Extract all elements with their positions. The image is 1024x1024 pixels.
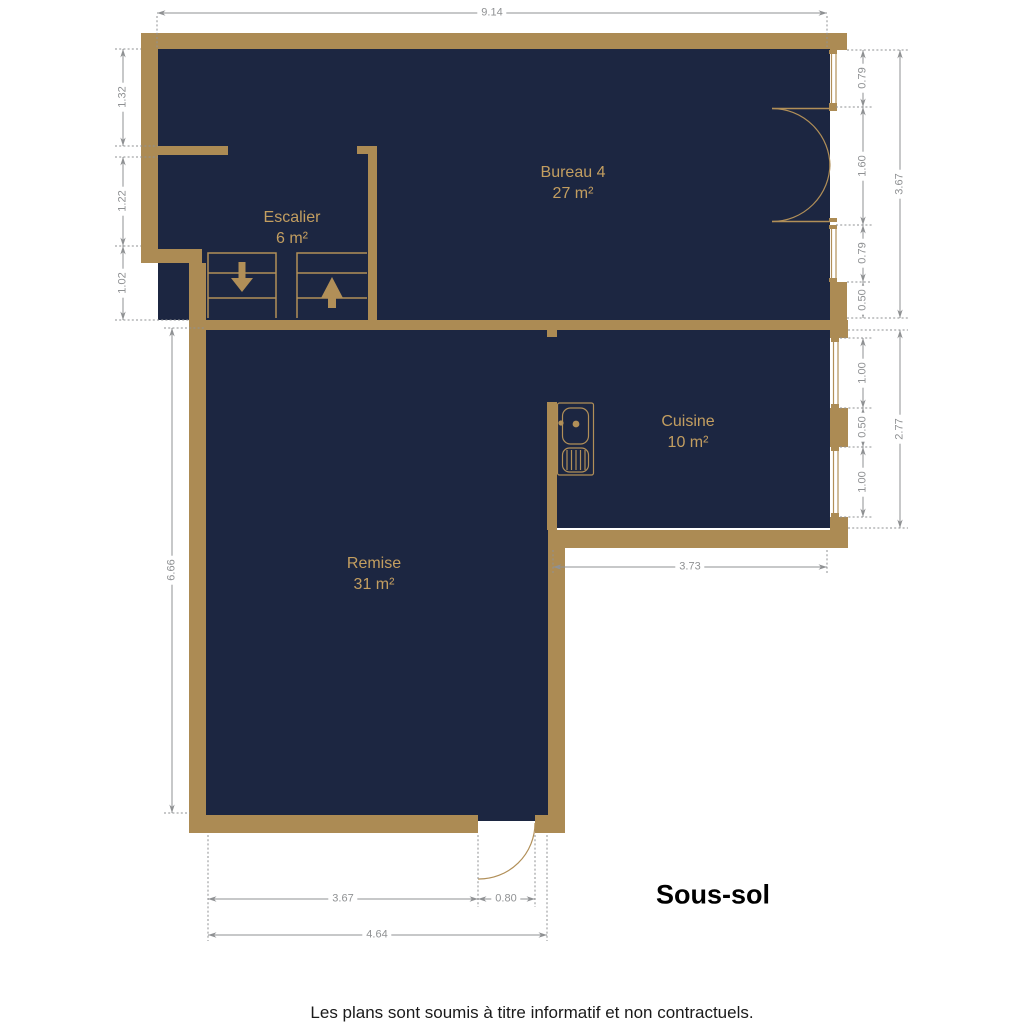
dim-kitchen-window-top: 1.00 [857, 358, 870, 387]
wall-bottom-right [535, 815, 565, 833]
window-bureau-bottom-icon [829, 225, 837, 282]
dim-bottom-total: 4.64 [362, 929, 391, 942]
room-name: Escalier [264, 207, 321, 228]
dim-kitchen-total: 2.77 [894, 414, 907, 443]
room-name: Bureau 4 [541, 162, 606, 183]
room-area-upper [158, 49, 830, 320]
room-area: 31 m² [347, 574, 401, 595]
door-threshold [478, 815, 535, 821]
wall-right-segment [830, 282, 847, 320]
dim-bottom-left: 3.67 [328, 893, 357, 906]
room-label-remise: Remise 31 m² [347, 553, 401, 595]
room-label-bureau: Bureau 4 27 m² [541, 162, 606, 204]
wall-left-upper [141, 49, 158, 249]
wall-kitchen-bottom [548, 530, 848, 548]
page-title: Sous-sol [656, 880, 770, 911]
window-cuisine-top-icon [831, 338, 839, 408]
wall-stair-stub-left [158, 146, 228, 155]
room-label-escalier: Escalier 6 m² [264, 207, 321, 249]
wall-remise-right [548, 530, 565, 833]
dim-right-window-bottom: 0.79 [857, 238, 870, 267]
floorplan-drawing [0, 0, 1024, 1024]
doorway-remise-cuisine [547, 337, 557, 402]
wall-left-jog [141, 249, 202, 263]
disclaimer-text: Les plans sont soumis à titre informatif… [310, 1003, 753, 1023]
wall-kitchen-right-segment [830, 408, 848, 447]
dim-kitchen-width: 3.73 [675, 561, 704, 574]
wall-left-lower [189, 263, 206, 833]
dim-kitchen-window-bottom: 1.00 [857, 467, 870, 496]
wall-bottom-left [189, 815, 478, 833]
dim-remise-height: 6.66 [166, 555, 179, 584]
dim-right-window-top: 0.79 [857, 63, 870, 92]
room-area: 6 m² [264, 228, 321, 249]
dim-right-total: 3.67 [894, 169, 907, 198]
wall-top [141, 33, 847, 49]
room-area: 10 m² [661, 432, 714, 453]
room-name: Remise [347, 553, 401, 574]
window-cuisine-bottom-icon [831, 447, 839, 517]
window-bureau-top-icon [829, 50, 837, 107]
room-area: 27 m² [541, 183, 606, 204]
wall-divider-horizontal [189, 320, 848, 330]
dim-top-width: 9.14 [477, 7, 506, 20]
dim-bottom-door: 0.80 [491, 893, 520, 906]
dim-left-middle: 1.22 [117, 186, 130, 215]
wall-divider-vertical [547, 402, 557, 530]
wall-kitchen-right-stub [830, 330, 848, 338]
floorplan-canvas: 9.14 1.32 1.22 1.02 6.66 0.79 1.60 0.79 … [0, 0, 1024, 1024]
room-name: Cuisine [661, 411, 714, 432]
wall-divider-stub [547, 327, 557, 337]
room-interiors [158, 49, 830, 821]
exterior-door-icon [478, 823, 535, 879]
wall-right-corner [830, 33, 847, 50]
dim-right-door: 1.60 [857, 151, 870, 180]
wall-stair-right [368, 146, 377, 320]
dim-kitchen-wall-segment: 0.50 [857, 412, 870, 441]
dim-left-upper: 1.32 [117, 82, 130, 111]
room-label-cuisine: Cuisine 10 m² [661, 411, 714, 453]
dim-left-lower: 1.02 [117, 268, 130, 297]
dim-right-wall-segment: 0.50 [857, 285, 870, 314]
